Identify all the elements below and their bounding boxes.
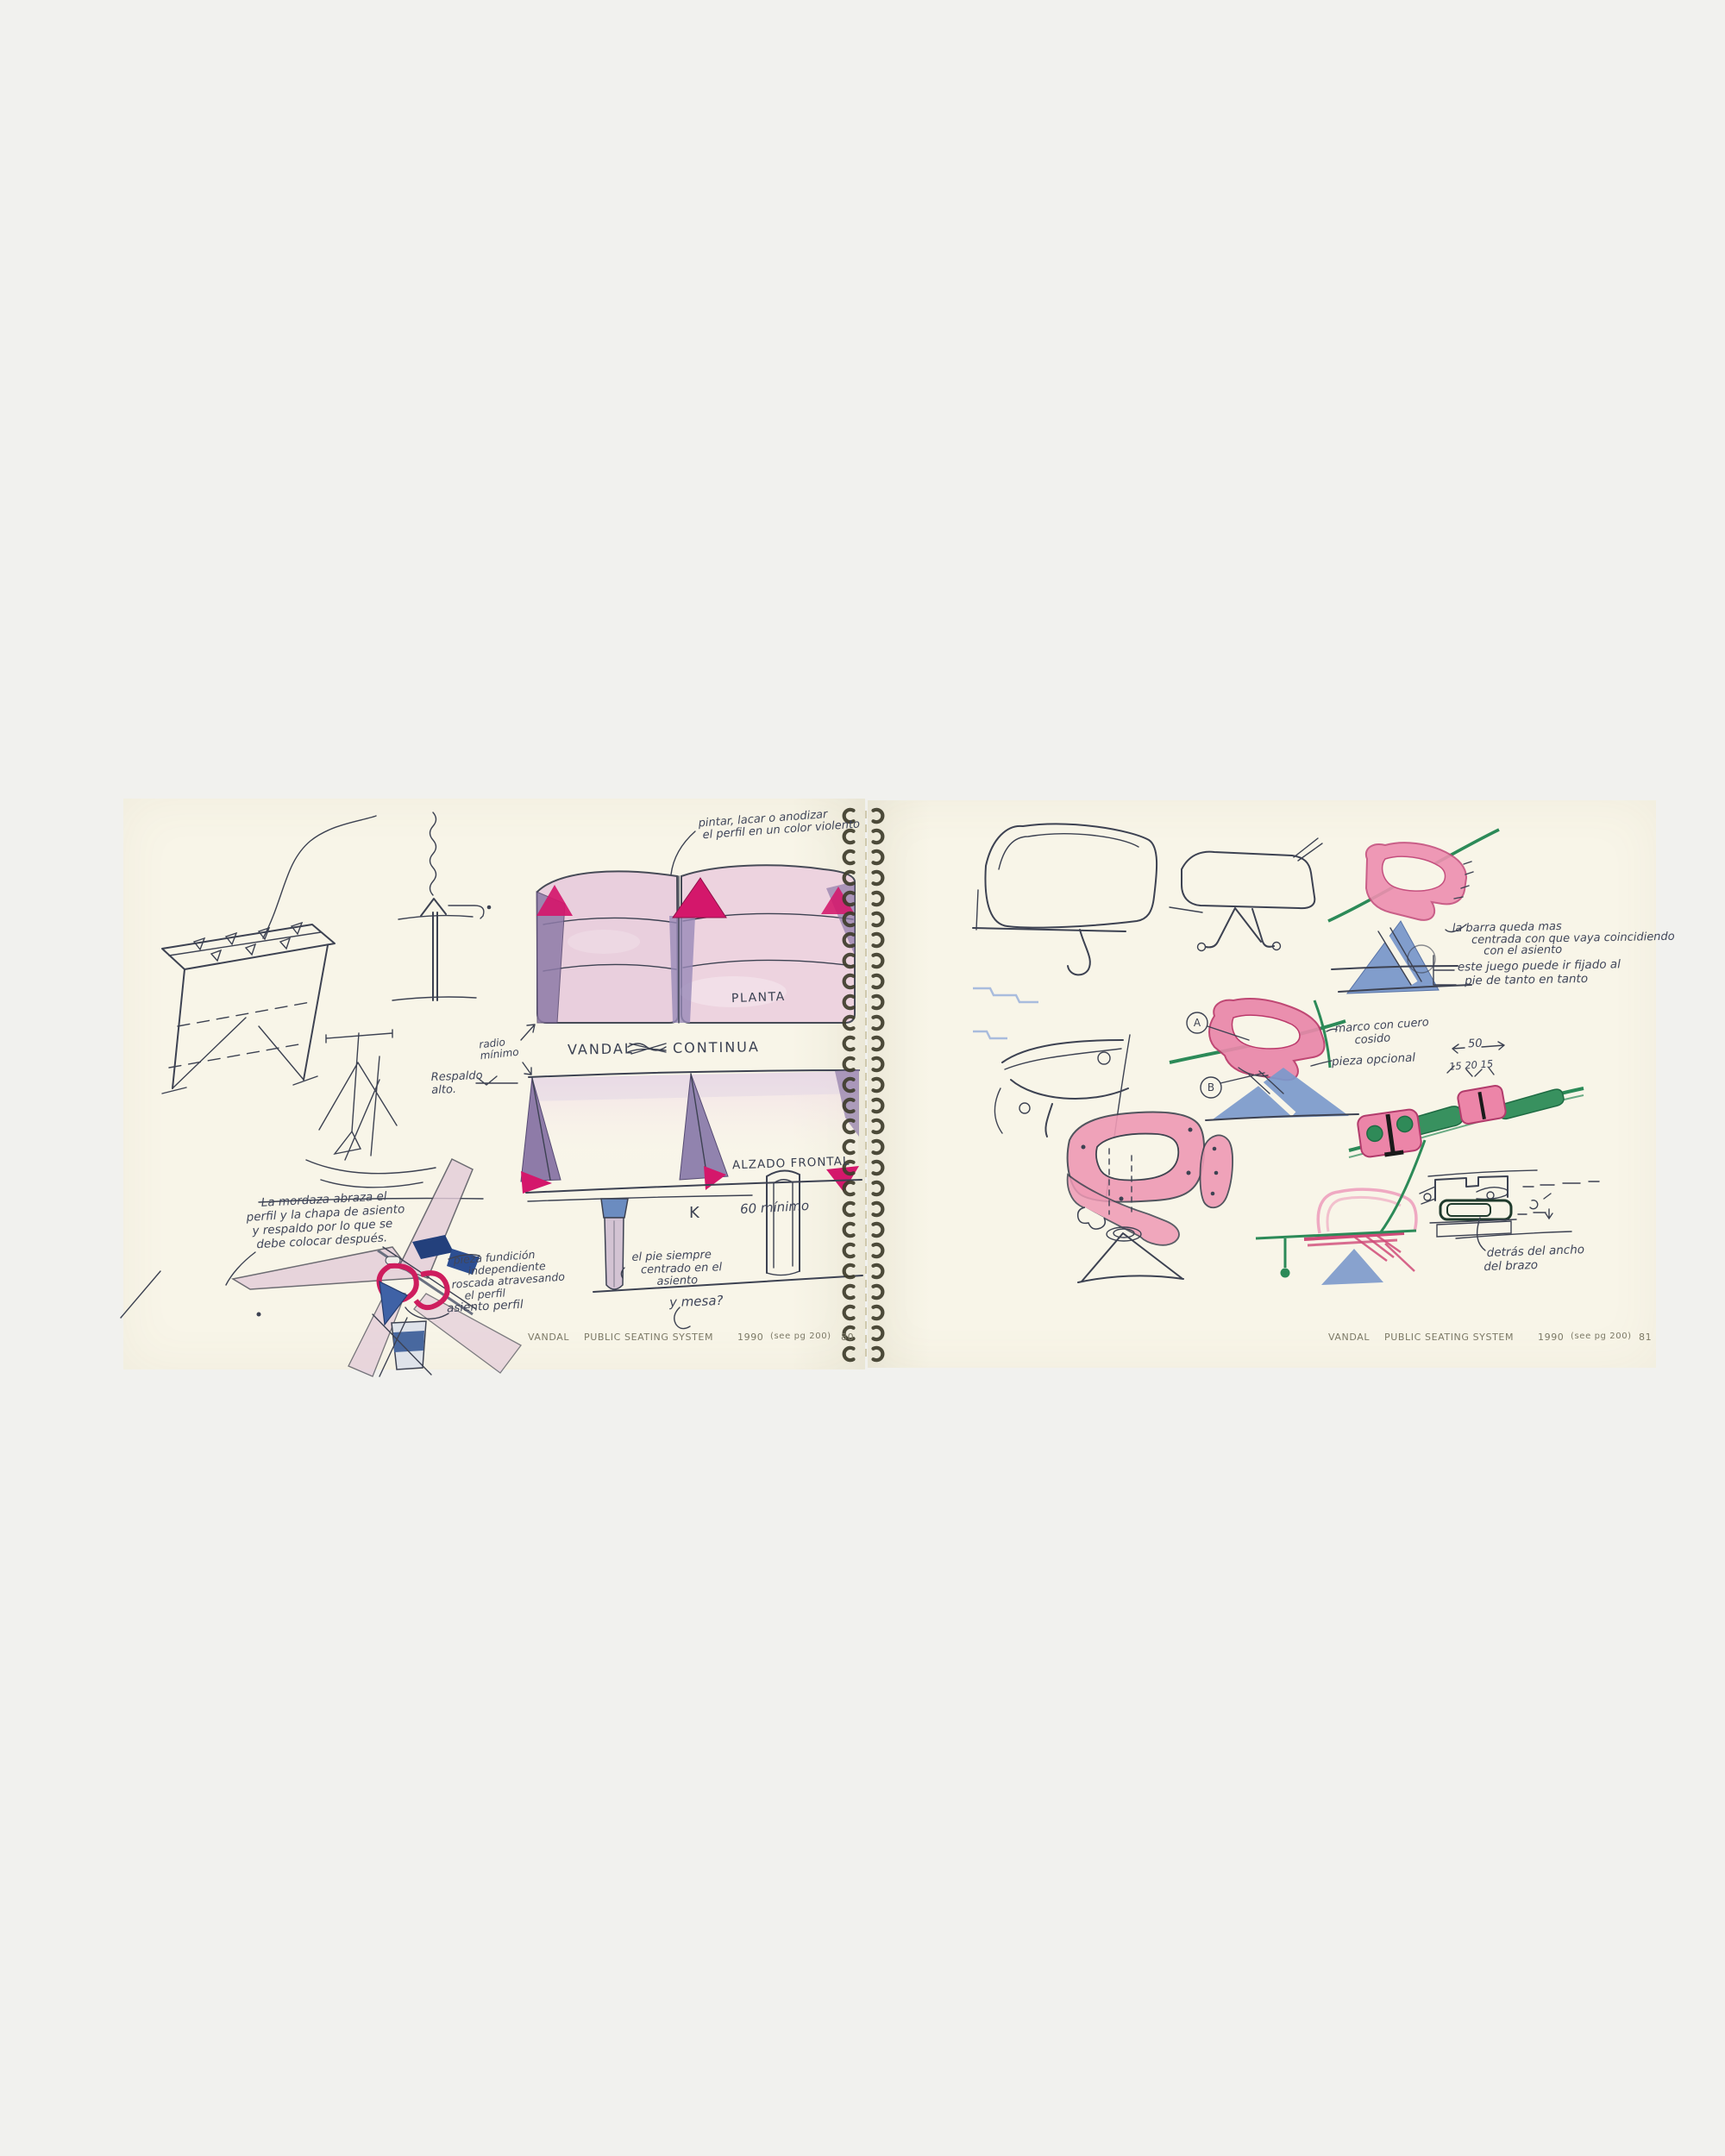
note-pieza-fundicion: pieza fundición independiente roscada at… [453,1247,566,1303]
footer-left-year: 1990 [737,1332,763,1343]
note-radio-minimo: radio mínimo [479,1036,519,1062]
callout-a: A [1189,1017,1205,1029]
label-planta: PLANTA [731,990,786,1006]
note-pie-centrado: el pie siempre centrado en el asiento [631,1249,723,1289]
note-barra-centrada: la barra queda mas centrada con que vaya… [1452,919,1675,958]
footer-left-page-number: 80 [841,1332,854,1343]
callout-b: B [1203,1081,1219,1094]
footer-left-ref: (see pg 200) [770,1332,831,1341]
note-mordaza: La mordaza abraza el perfil y la chapa d… [245,1188,406,1252]
footer-right-ref: (see pg 200) [1571,1332,1632,1341]
footer-right-year: 1990 [1538,1332,1564,1343]
footer-right-brand: VANDAL [1328,1332,1370,1343]
label-k: K [689,1204,699,1222]
footer-left-brand: VANDAL [528,1332,569,1343]
note-detras-brazo: detrás del ancho del brazo [1486,1243,1584,1274]
note-juego-fijado: este juego puede ir fijado al pie de tan… [1458,957,1621,987]
scanned-sketchbook-spread: { "colors": { "paper": "#f8f5e8", "backg… [0,0,1725,2156]
series-title-continua: CONTINUA [673,1038,760,1056]
dimension-50: 50 [1468,1037,1483,1051]
series-title-vandal: VANDAL [568,1040,634,1057]
footer-right-title: PUBLIC SEATING SYSTEM [1384,1332,1514,1343]
note-y-mesa: y mesa? [669,1293,724,1310]
footer-left-title: PUBLIC SEATING SYSTEM [584,1332,713,1343]
footer-right-page-number: 81 [1639,1332,1652,1343]
note-respaldo-alto: Respaldo alto. [430,1069,483,1097]
right-page [868,800,1656,1368]
